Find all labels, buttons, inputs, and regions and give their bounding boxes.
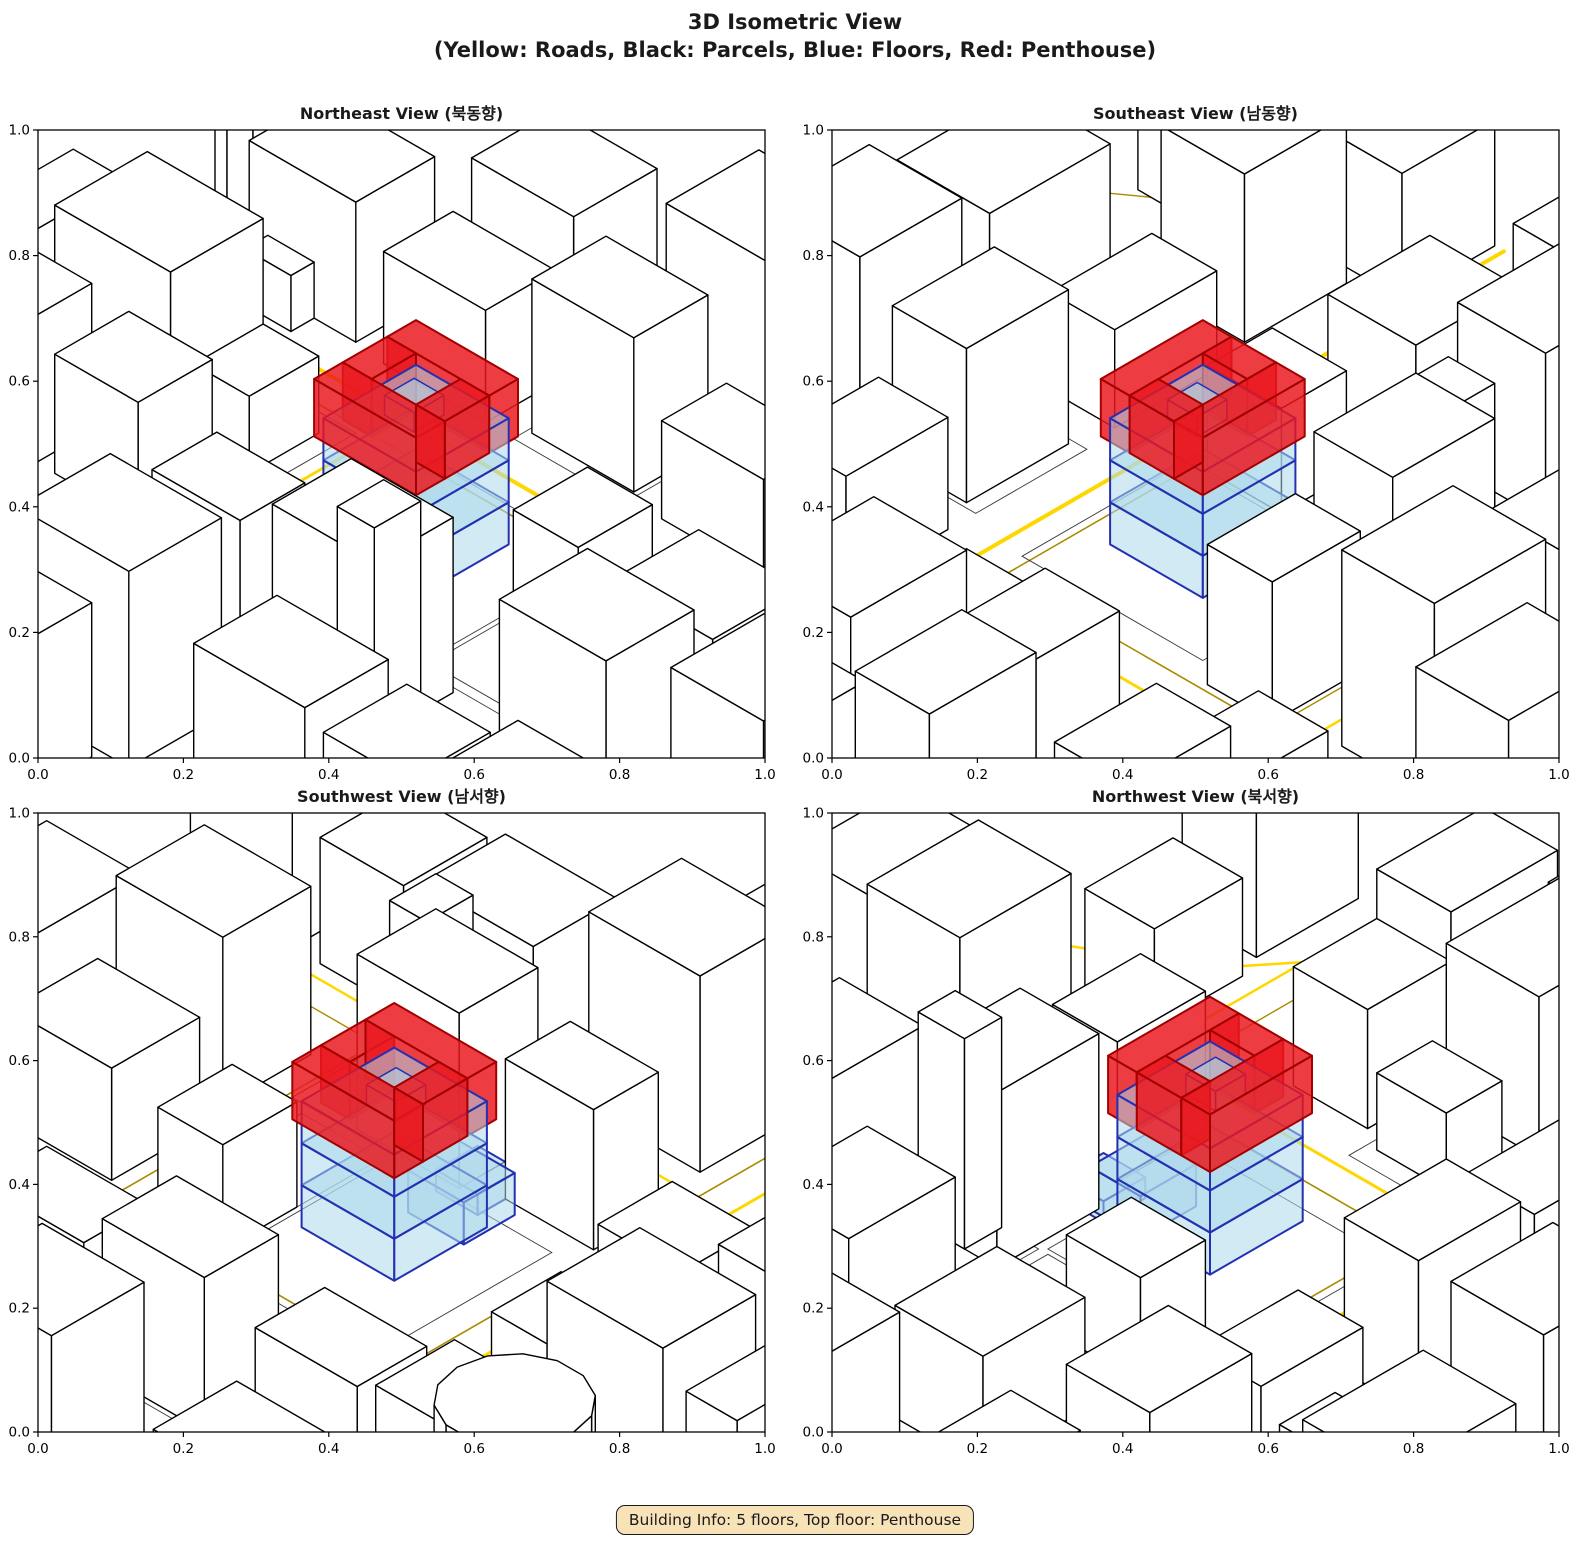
scene-southeast — [794, 118, 1590, 784]
figure-title-line1: 3D Isometric View — [0, 8, 1590, 36]
y-tick-label: 1.0 — [9, 123, 30, 139]
y-tick-label: 0.2 — [803, 625, 824, 641]
x-tick-label: 0.8 — [1403, 1441, 1424, 1457]
x-tick-label: 0.2 — [173, 767, 194, 783]
x-tick-label: 0.2 — [967, 767, 988, 783]
x-tick-label: 0.8 — [609, 1441, 630, 1457]
x-tick-label: 0.6 — [463, 767, 484, 783]
y-tick-label: 0.4 — [803, 1177, 824, 1193]
y-tick-label: 0.6 — [803, 1053, 824, 1069]
x-tick-label: 0.2 — [967, 1441, 988, 1457]
x-tick-label: 0.4 — [318, 767, 339, 783]
x-tick-label: 0.6 — [1257, 1441, 1278, 1457]
y-tick-label: 0.2 — [9, 1301, 30, 1317]
x-tick-label: 0.8 — [609, 767, 630, 783]
y-tick-label: 1.0 — [9, 806, 30, 822]
x-tick-label: 1.0 — [1548, 767, 1569, 783]
buildings-layer — [794, 801, 1590, 1459]
x-tick-label: 1.0 — [754, 767, 775, 783]
x-tick-label: 1.0 — [1548, 1441, 1569, 1457]
y-tick-label: 0.0 — [9, 1425, 30, 1441]
building-info-badge: Building Info: 5 floors, Top floor: Pent… — [616, 1505, 974, 1535]
y-tick-label: 0.4 — [9, 1177, 30, 1193]
y-tick-label: 0.2 — [9, 625, 30, 641]
plot-northwest-canvas: 0.00.00.20.20.40.40.60.60.80.81.01.0 — [794, 801, 1590, 1459]
y-tick-label: 0.0 — [9, 751, 30, 767]
x-tick-label: 0.0 — [821, 767, 842, 783]
buildings-layer — [0, 118, 800, 784]
scene-southwest — [0, 801, 800, 1459]
figure-title-line2: (Yellow: Roads, Black: Parcels, Blue: Fl… — [0, 36, 1590, 64]
y-tick-label: 0.4 — [803, 499, 824, 515]
scene-northeast — [0, 118, 800, 784]
figure-title: 3D Isometric View (Yellow: Roads, Black:… — [0, 8, 1590, 64]
y-tick-label: 0.6 — [803, 374, 824, 390]
x-tick-label: 0.6 — [1257, 767, 1278, 783]
y-tick-label: 1.0 — [803, 806, 824, 822]
y-tick-label: 0.8 — [9, 929, 30, 945]
x-tick-label: 0.6 — [463, 1441, 484, 1457]
y-tick-label: 0.8 — [803, 248, 824, 264]
x-tick-label: 0.2 — [173, 1441, 194, 1457]
plot-southeast-canvas: 0.00.00.20.20.40.40.60.60.80.81.01.0 — [794, 118, 1590, 784]
y-tick-label: 0.8 — [9, 248, 30, 264]
y-tick-label: 0.8 — [803, 929, 824, 945]
plot-southwest-canvas: 0.00.00.20.20.40.40.60.60.80.81.01.0 — [0, 801, 800, 1459]
x-tick-label: 1.0 — [754, 1441, 775, 1457]
x-tick-label: 0.0 — [27, 1441, 48, 1457]
scene-northwest — [794, 801, 1590, 1459]
x-tick-label: 0.0 — [27, 767, 48, 783]
y-tick-label: 0.6 — [9, 1053, 30, 1069]
y-tick-label: 0.0 — [803, 1425, 824, 1441]
figure: 3D Isometric View (Yellow: Roads, Black:… — [0, 0, 1590, 1560]
y-tick-label: 0.0 — [803, 751, 824, 767]
y-tick-label: 0.4 — [9, 499, 30, 515]
x-tick-label: 0.4 — [1112, 1441, 1133, 1457]
x-tick-label: 0.4 — [1112, 767, 1133, 783]
y-tick-label: 0.6 — [9, 374, 30, 390]
y-tick-label: 0.2 — [803, 1301, 824, 1317]
plot-northeast-canvas: 0.00.00.20.20.40.40.60.60.80.81.01.0 — [0, 118, 800, 784]
x-tick-label: 0.4 — [318, 1441, 339, 1457]
x-tick-label: 0.0 — [821, 1441, 842, 1457]
x-tick-label: 0.8 — [1403, 767, 1424, 783]
y-tick-label: 1.0 — [803, 123, 824, 139]
buildings-layer — [0, 801, 800, 1459]
